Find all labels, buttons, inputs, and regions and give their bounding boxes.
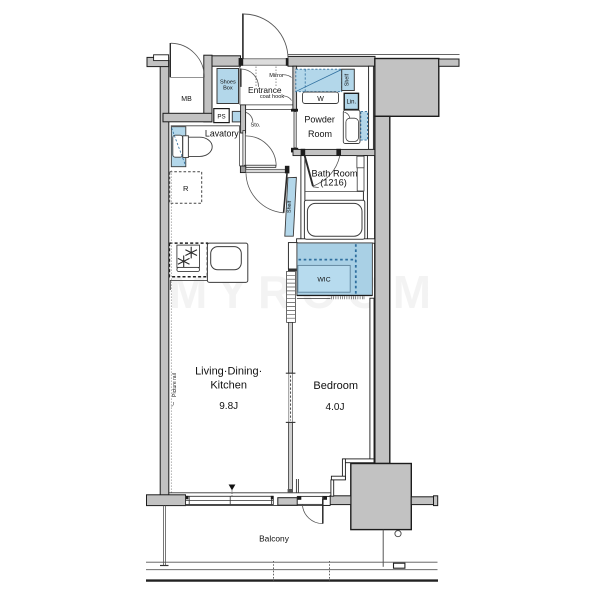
svg-text:PS: PS xyxy=(217,113,225,120)
svg-text:Powder: Powder xyxy=(304,114,335,124)
svg-text:W: W xyxy=(317,96,324,103)
svg-text:MB: MB xyxy=(181,96,192,103)
svg-text:WIC: WIC xyxy=(317,277,330,284)
svg-text:Kitchen: Kitchen xyxy=(210,380,247,392)
svg-text:Picture rail: Picture rail xyxy=(172,373,178,397)
svg-text:Room: Room xyxy=(308,129,332,139)
svg-text:Bedroom: Bedroom xyxy=(313,380,358,392)
svg-text:Shelf: Shelf xyxy=(344,73,350,86)
svg-text:R: R xyxy=(183,184,189,193)
svg-text:Lin.: Lin. xyxy=(346,100,356,106)
svg-text:Balcony: Balcony xyxy=(259,534,290,544)
svg-text:coat hook: coat hook xyxy=(260,94,284,100)
svg-text:Sto.: Sto. xyxy=(251,122,261,128)
svg-text:(1216): (1216) xyxy=(320,178,347,188)
svg-text:Shelf: Shelf xyxy=(286,200,293,213)
svg-text:Lavatory: Lavatory xyxy=(205,128,239,138)
svg-text:Box: Box xyxy=(223,86,233,92)
svg-text:Shoes: Shoes xyxy=(220,79,236,85)
svg-text:Mirror: Mirror xyxy=(269,73,284,79)
svg-text:9.8J: 9.8J xyxy=(219,401,238,412)
svg-text:Living·Dining·: Living·Dining· xyxy=(195,366,262,378)
svg-text:4.0J: 4.0J xyxy=(326,402,345,413)
